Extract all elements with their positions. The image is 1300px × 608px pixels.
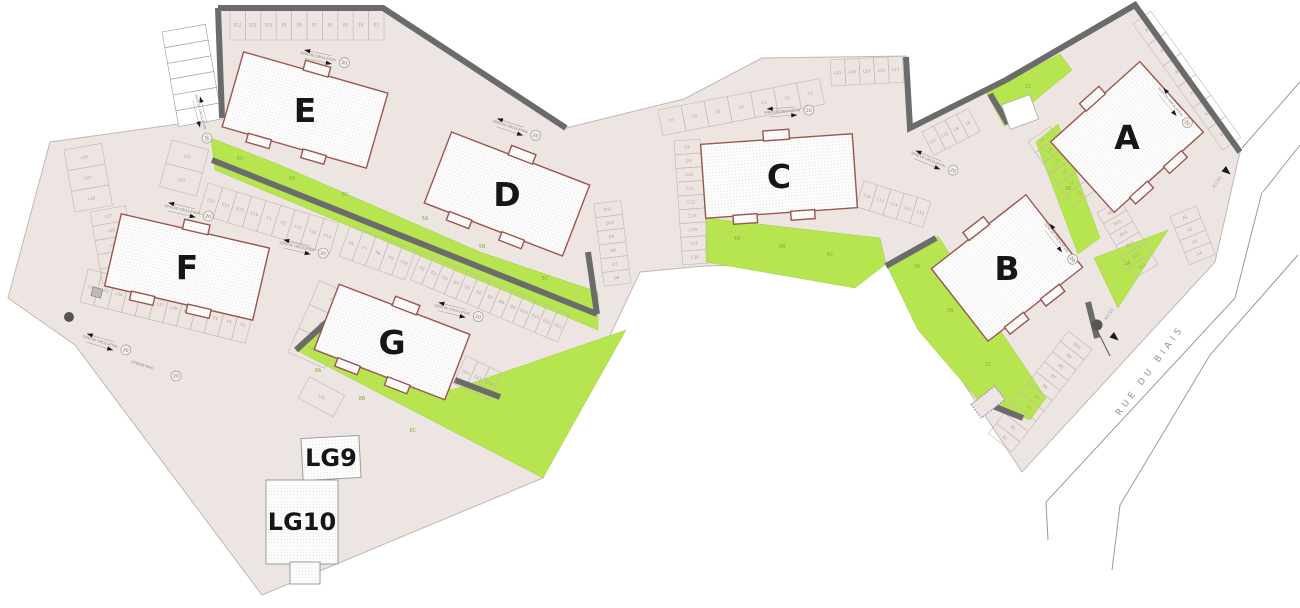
site-plan-canvas: RUE DU BIAISACCESACCES 6A6B6C5A5B5C8A8B8… [0, 0, 1300, 608]
parking-stall-label: L17 [892, 67, 900, 72]
parking-stall-label: C12 [687, 199, 696, 205]
parking-stall-label: E5 [343, 22, 349, 27]
parking-stall-label: E10 [265, 22, 273, 27]
parking-stall-label: C8 [685, 144, 691, 149]
green-zone-label-5B: 5B [479, 244, 486, 250]
parking-stall-label: D10 [605, 220, 614, 226]
parking-stall-label: L19 [863, 68, 871, 73]
parking-stall-label: C9 [685, 158, 691, 163]
parking-stall-label: E7 [312, 22, 318, 27]
green-zone-label-3C: 3C [985, 362, 992, 368]
road-edge [1263, 145, 1300, 192]
parking-stall-label: D11 [604, 206, 613, 212]
parking-stall-label: D8 [610, 247, 617, 253]
parking-stall-label: C10 [685, 172, 694, 178]
green-zone-label-4A: 4A [734, 236, 741, 242]
parking-stall-label: D6 [613, 275, 620, 281]
parking-stall-label: D7 [612, 261, 619, 267]
building-label-A: A [1114, 118, 1140, 157]
building-step [733, 214, 758, 225]
parking-stall-label: E3 [374, 22, 380, 27]
green-zone-label-8B: 8B [359, 396, 366, 402]
green-zone-label-6B: 6B [289, 176, 296, 182]
parking-stall-label: E12 [234, 22, 242, 27]
green-zone-label-6C: 6C [342, 192, 349, 198]
building-label-G: G [378, 323, 405, 362]
building-label-E: E [294, 91, 317, 130]
parking-stall-label: C15 [690, 240, 699, 246]
parking-stall-label: E6 [328, 22, 334, 27]
parking-stall-label: D9 [608, 234, 615, 240]
parking-stall-label: E9 [281, 22, 287, 27]
building-label-D: D [493, 175, 520, 214]
parking-stall-label: L21 [834, 70, 842, 75]
site-plan: RUE DU BIAISACCESACCES 6A6B6C5A5B5C8A8B8… [0, 0, 1300, 608]
green-zone-label-3B: 3B [947, 308, 954, 314]
parking-stall-label: E8 [297, 22, 303, 27]
row-visitor-white [162, 24, 222, 126]
road-edge [1242, 82, 1300, 148]
green-zone-label-6A: 6A [237, 156, 244, 162]
parking-stall-label: C13 [688, 213, 697, 219]
building-label-F: F [176, 248, 199, 287]
parking-stall-label: L18 [877, 68, 885, 73]
parking-stall-label: C16 [691, 254, 700, 260]
parking-stall-label: E4 [358, 22, 364, 27]
green-zone-label-5C: 5C [542, 276, 549, 282]
speed-limit-label: 20 [173, 374, 179, 380]
green-zone-label-3A: 3A [914, 264, 921, 270]
speed-limit-label: 20 [806, 108, 812, 114]
boundary-wall [218, 8, 222, 118]
green-zone-label-8A: 8A [315, 368, 322, 374]
building-stair-core [763, 129, 790, 141]
green-zone-label-2C: 2C [1025, 84, 1032, 90]
parking-stall-label: E11 [249, 22, 257, 27]
green-zone-label-4C: 4C [827, 252, 834, 258]
lamp-post-icon [1092, 320, 1103, 331]
building-label-B: B [994, 249, 1019, 288]
parking-stall-label: C14 [689, 227, 698, 233]
green-zone-label-5A: 5A [422, 216, 429, 222]
building-label-LG10: LG10 [268, 508, 336, 536]
green-zone-label-8C: 8C [410, 428, 417, 434]
building-step [791, 210, 816, 221]
building-LG10-annex [290, 562, 320, 584]
parking-stall-label: L20 [849, 69, 857, 74]
lamp-post-icon [64, 312, 74, 322]
building-label-C: C [767, 157, 791, 196]
green-zone-label-4B: 4B [779, 244, 786, 250]
building-label-LG9: LG9 [305, 444, 357, 472]
parking-stall-label: C11 [686, 185, 695, 191]
